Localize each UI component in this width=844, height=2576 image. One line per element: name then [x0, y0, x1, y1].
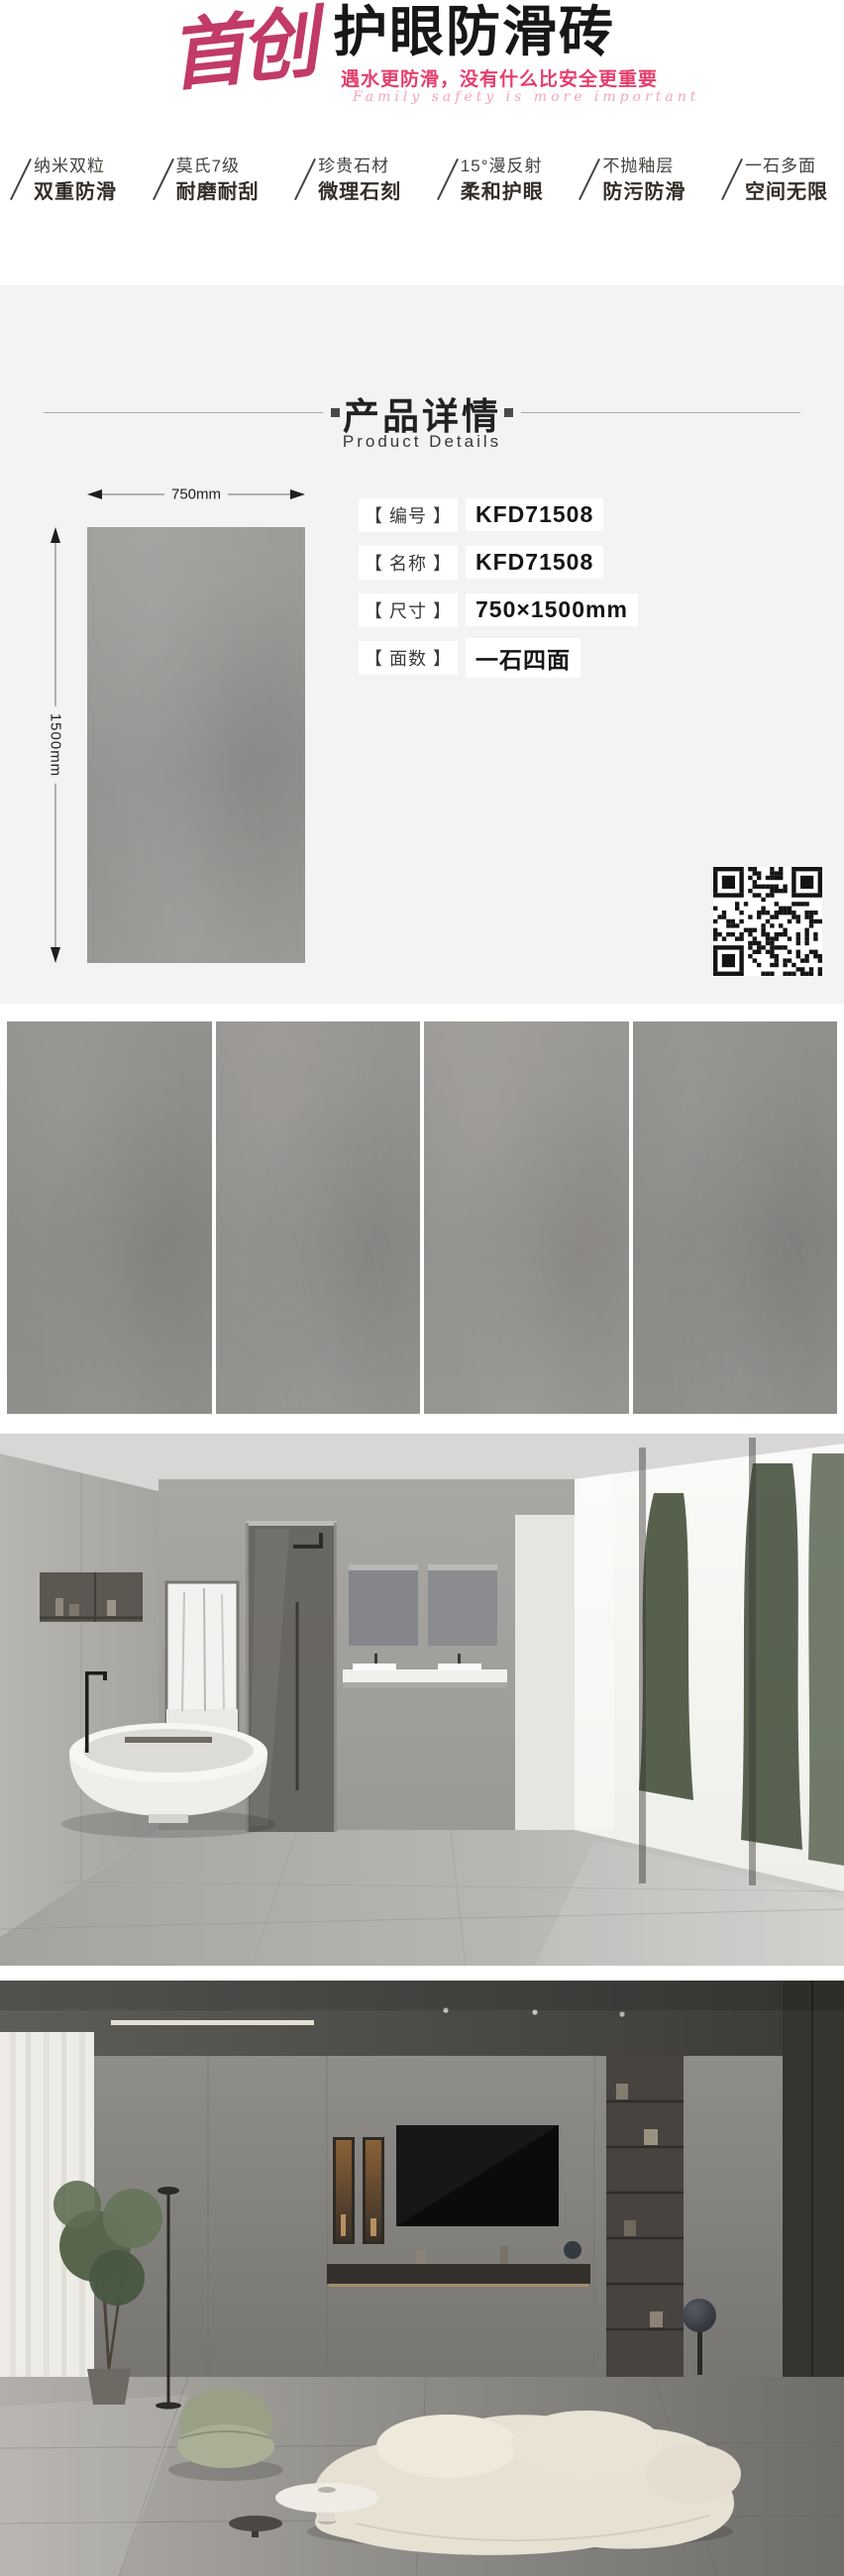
spec-row: 【 面数 】 一石四面: [359, 642, 638, 673]
qr-code: [713, 867, 822, 976]
slash-divider-icon: [10, 159, 32, 200]
product-details-section: 产品详情 Product Details 750mm 1500mm: [0, 285, 844, 1004]
dimension-width: 750mm: [87, 486, 305, 502]
slash-divider-icon: [579, 159, 600, 200]
product-tile-swatch: [87, 527, 305, 963]
product-detail-page: 首创 护眼防滑砖 遇水更防滑，没有什么比安全更重要 Family safety …: [0, 0, 844, 2576]
spec-value: 一石四面: [466, 638, 580, 678]
feature-line1: 不抛釉层: [602, 155, 686, 178]
feature-line2: 柔和护眼: [461, 178, 544, 206]
feature-line1: 珍贵石材: [318, 155, 401, 178]
spec-value: 750×1500mm: [466, 593, 638, 626]
tile-faces-strip: [7, 1021, 837, 1414]
spec-value: KFD71508: [466, 546, 603, 579]
feature-list: 纳米双粒 双重防滑 莫氏7级 耐磨耐刮 珍贵石材 微理石刻 15°漫反射 柔和护…: [16, 155, 828, 238]
slogan-en: Family safety is more important: [353, 89, 699, 105]
feature-line2: 防污防滑: [602, 178, 686, 206]
spec-label: 【 尺寸 】: [359, 593, 458, 627]
slash-divider-icon: [437, 159, 459, 200]
feature-line1: 一石多面: [745, 155, 828, 178]
living-room-scene-illustration: [0, 1981, 844, 2576]
living-room-scene-image: [0, 1981, 844, 2576]
brand-logo: 首创: [142, 0, 340, 115]
feature-item: 不抛釉层 防污防滑: [584, 155, 686, 238]
spec-list: 【 编号 】 KFD71508 【 名称 】 KFD71508 【 尺寸 】 7…: [359, 499, 638, 690]
feature-item: 15°漫反射 柔和护眼: [443, 155, 544, 238]
bathroom-scene-illustration: [0, 1434, 844, 1966]
spec-row: 【 尺寸 】 750×1500mm: [359, 594, 638, 625]
feature-item: 一石多面 空间无限: [727, 155, 828, 238]
feature-item: 珍贵石材 微理石刻: [300, 155, 401, 238]
tile-face-4: [633, 1021, 838, 1414]
tile-faces-block: [0, 1004, 844, 1434]
spec-label: 【 面数 】: [359, 641, 458, 675]
section-header: 产品详情 Product Details: [0, 376, 844, 456]
tile-face-2: [216, 1021, 421, 1414]
slash-divider-icon: [721, 159, 743, 200]
feature-line1: 15°漫反射: [461, 155, 544, 178]
spec-row: 【 名称 】 KFD71508: [359, 547, 638, 578]
slash-divider-icon: [153, 159, 174, 200]
tile-face-3: [424, 1021, 629, 1414]
spec-label: 【 名称 】: [359, 546, 458, 580]
feature-line2: 空间无限: [745, 178, 828, 206]
feature-line2: 耐磨耐刮: [176, 178, 260, 206]
feature-line2: 微理石刻: [318, 178, 401, 206]
dimension-width-label: 750mm: [164, 486, 228, 503]
bathroom-scene-image: [0, 1434, 844, 1966]
dimension-height-label: 1500mm: [48, 706, 64, 784]
feature-item: 莫氏7级 耐磨耐刮: [158, 155, 260, 238]
page-title: 护眼防滑砖: [333, 2, 615, 61]
feature-item: 纳米双粒 双重防滑: [16, 155, 117, 238]
tile-face-1: [7, 1021, 212, 1414]
feature-line1: 纳米双粒: [34, 155, 117, 178]
feature-line1: 莫氏7级: [176, 155, 260, 178]
spec-value: KFD71508: [466, 498, 603, 531]
slash-divider-icon: [294, 159, 316, 200]
feature-line2: 双重防滑: [34, 178, 117, 206]
square-bullet-icon: [504, 408, 513, 417]
section-subtitle: Product Details: [0, 432, 844, 452]
divider-line: [521, 412, 800, 413]
dimension-height: 1500mm: [48, 527, 63, 963]
spec-row: 【 编号 】 KFD71508: [359, 499, 638, 530]
spec-label: 【 编号 】: [359, 498, 458, 532]
slogan-cn: 遇水更防滑，没有什么比安全更重要: [341, 64, 658, 91]
